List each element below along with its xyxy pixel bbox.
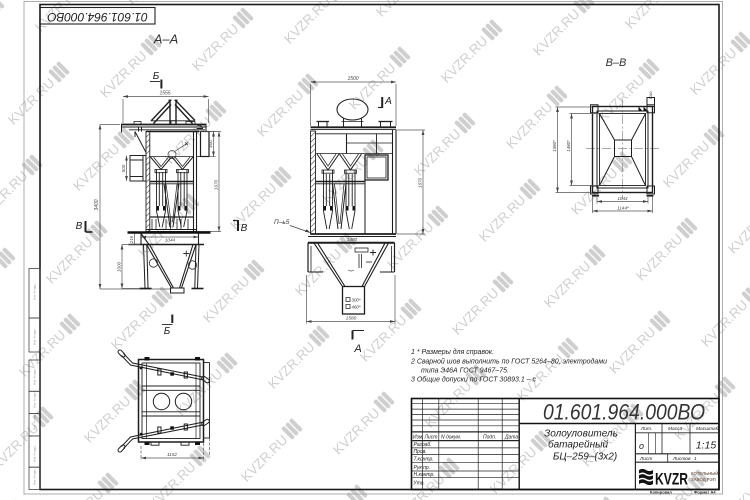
svg-text:3400: 3400 [94, 199, 100, 210]
svg-text:1:15: 1:15 [696, 440, 717, 452]
svg-text:типа Э46А ГОСТ 9467–75.: типа Э46А ГОСТ 9467–75. [421, 368, 509, 375]
svg-text:1480: 1480 [347, 237, 358, 242]
svg-text:N докум.: N докум. [441, 435, 461, 441]
svg-text:Т.контр.: Т.контр. [414, 457, 434, 463]
svg-text:В: В [76, 221, 83, 232]
svg-text:Лит.: Лит. [640, 426, 652, 432]
svg-text:1144*: 1144* [617, 205, 629, 210]
svg-text:2 Сварной шов выполнить по ГОС: 2 Сварной шов выполнить по ГОСТ 5264–80,… [410, 358, 607, 366]
svg-text:В–В: В–В [606, 57, 627, 69]
svg-text:Разраб.: Разраб. [414, 442, 432, 448]
svg-text:П–ь5: П–ь5 [274, 219, 290, 226]
svg-text:Золоуловитель: Золоуловитель [544, 429, 618, 440]
svg-text:Инв. N подл.: Инв. N подл. [33, 368, 37, 385]
svg-text:Листов: Листов [672, 456, 691, 462]
svg-text:Масштаб: Масштаб [696, 426, 719, 432]
svg-text:А–А: А–А [153, 32, 179, 47]
svg-text:1500: 1500 [347, 76, 358, 82]
svg-text:1480*: 1480* [566, 140, 571, 152]
svg-text:KVZR: KVZR [655, 470, 688, 489]
svg-text:1040: 1040 [649, 92, 653, 100]
svg-text:1: 1 [694, 456, 697, 462]
svg-text:Копировал: Копировал [650, 490, 672, 495]
svg-text:БЦ–259–(3х2): БЦ–259–(3х2) [553, 452, 617, 463]
svg-text:Формат А4: Формат А4 [694, 490, 716, 495]
svg-text:Масса: Масса [668, 426, 683, 432]
svg-text:1555: 1555 [159, 91, 170, 97]
svg-text:1000: 1000 [117, 261, 122, 272]
svg-text:Б: Б [153, 71, 160, 82]
svg-text:КОТЕЛЬНЫЙ: КОТЕЛЬНЫЙ [691, 471, 718, 476]
svg-text:Изм.: Изм. [413, 435, 424, 441]
svg-text:Инв. N подл.: Инв. N подл. [33, 328, 37, 345]
svg-text:1580: 1580 [346, 316, 357, 322]
svg-text:о: о [639, 441, 644, 451]
svg-text:1 * Размеры для справок.: 1 * Размеры для справок. [411, 348, 494, 356]
svg-text:Подп.: Подп. [483, 435, 496, 441]
svg-text:Инв. N подл.: Инв. N подл. [33, 445, 37, 462]
svg-text:500: 500 [121, 164, 126, 172]
svg-text:Инв. N подл.: Инв. N подл. [33, 413, 37, 430]
svg-text:ЗАВОД РЭП: ЗАВОД РЭП [691, 477, 716, 482]
svg-text:Утв.: Утв. [414, 481, 425, 487]
svg-text:216: 216 [129, 235, 134, 244]
svg-text:300*: 300* [352, 298, 361, 303]
svg-text:батарейный: батарейный [548, 439, 609, 451]
svg-text:01.601.964.000ВО: 01.601.964.000ВО [543, 400, 705, 425]
svg-text:А: А [384, 96, 392, 107]
svg-text:1044: 1044 [617, 196, 628, 201]
svg-text:Инв. N подл.: Инв. N подл. [33, 391, 37, 408]
svg-text:1580*: 1580* [552, 140, 557, 152]
svg-text:460*: 460* [352, 305, 361, 310]
svg-text:В: В [241, 223, 248, 234]
svg-text:400: 400 [208, 140, 213, 148]
svg-text:Инв. N подл.: Инв. N подл. [33, 468, 37, 485]
svg-text:1670: 1670 [418, 177, 423, 188]
svg-text:1670: 1670 [214, 179, 219, 190]
svg-text:1044: 1044 [165, 238, 176, 243]
svg-text:Лист: Лист [424, 435, 438, 441]
svg-text:Пров.: Пров. [414, 449, 427, 455]
svg-text:3 Общие допуски по ГОСТ 30893.: 3 Общие допуски по ГОСТ 30893.1 – с [411, 376, 537, 384]
svg-text:Н.контр.: Н.контр. [414, 472, 435, 478]
svg-text:Дата: Дата [504, 435, 518, 441]
svg-text:А: А [353, 343, 361, 355]
svg-text:Рук.пр.: Рук.пр. [414, 465, 431, 471]
svg-text:01.601.964.000ВО: 01.601.964.000ВО [47, 10, 148, 24]
svg-text:Инв. N подл.: Инв. N подл. [33, 283, 37, 300]
svg-text:Лист: Лист [639, 456, 652, 462]
svg-text:1152: 1152 [167, 452, 177, 457]
svg-text:Б: Б [164, 326, 171, 337]
